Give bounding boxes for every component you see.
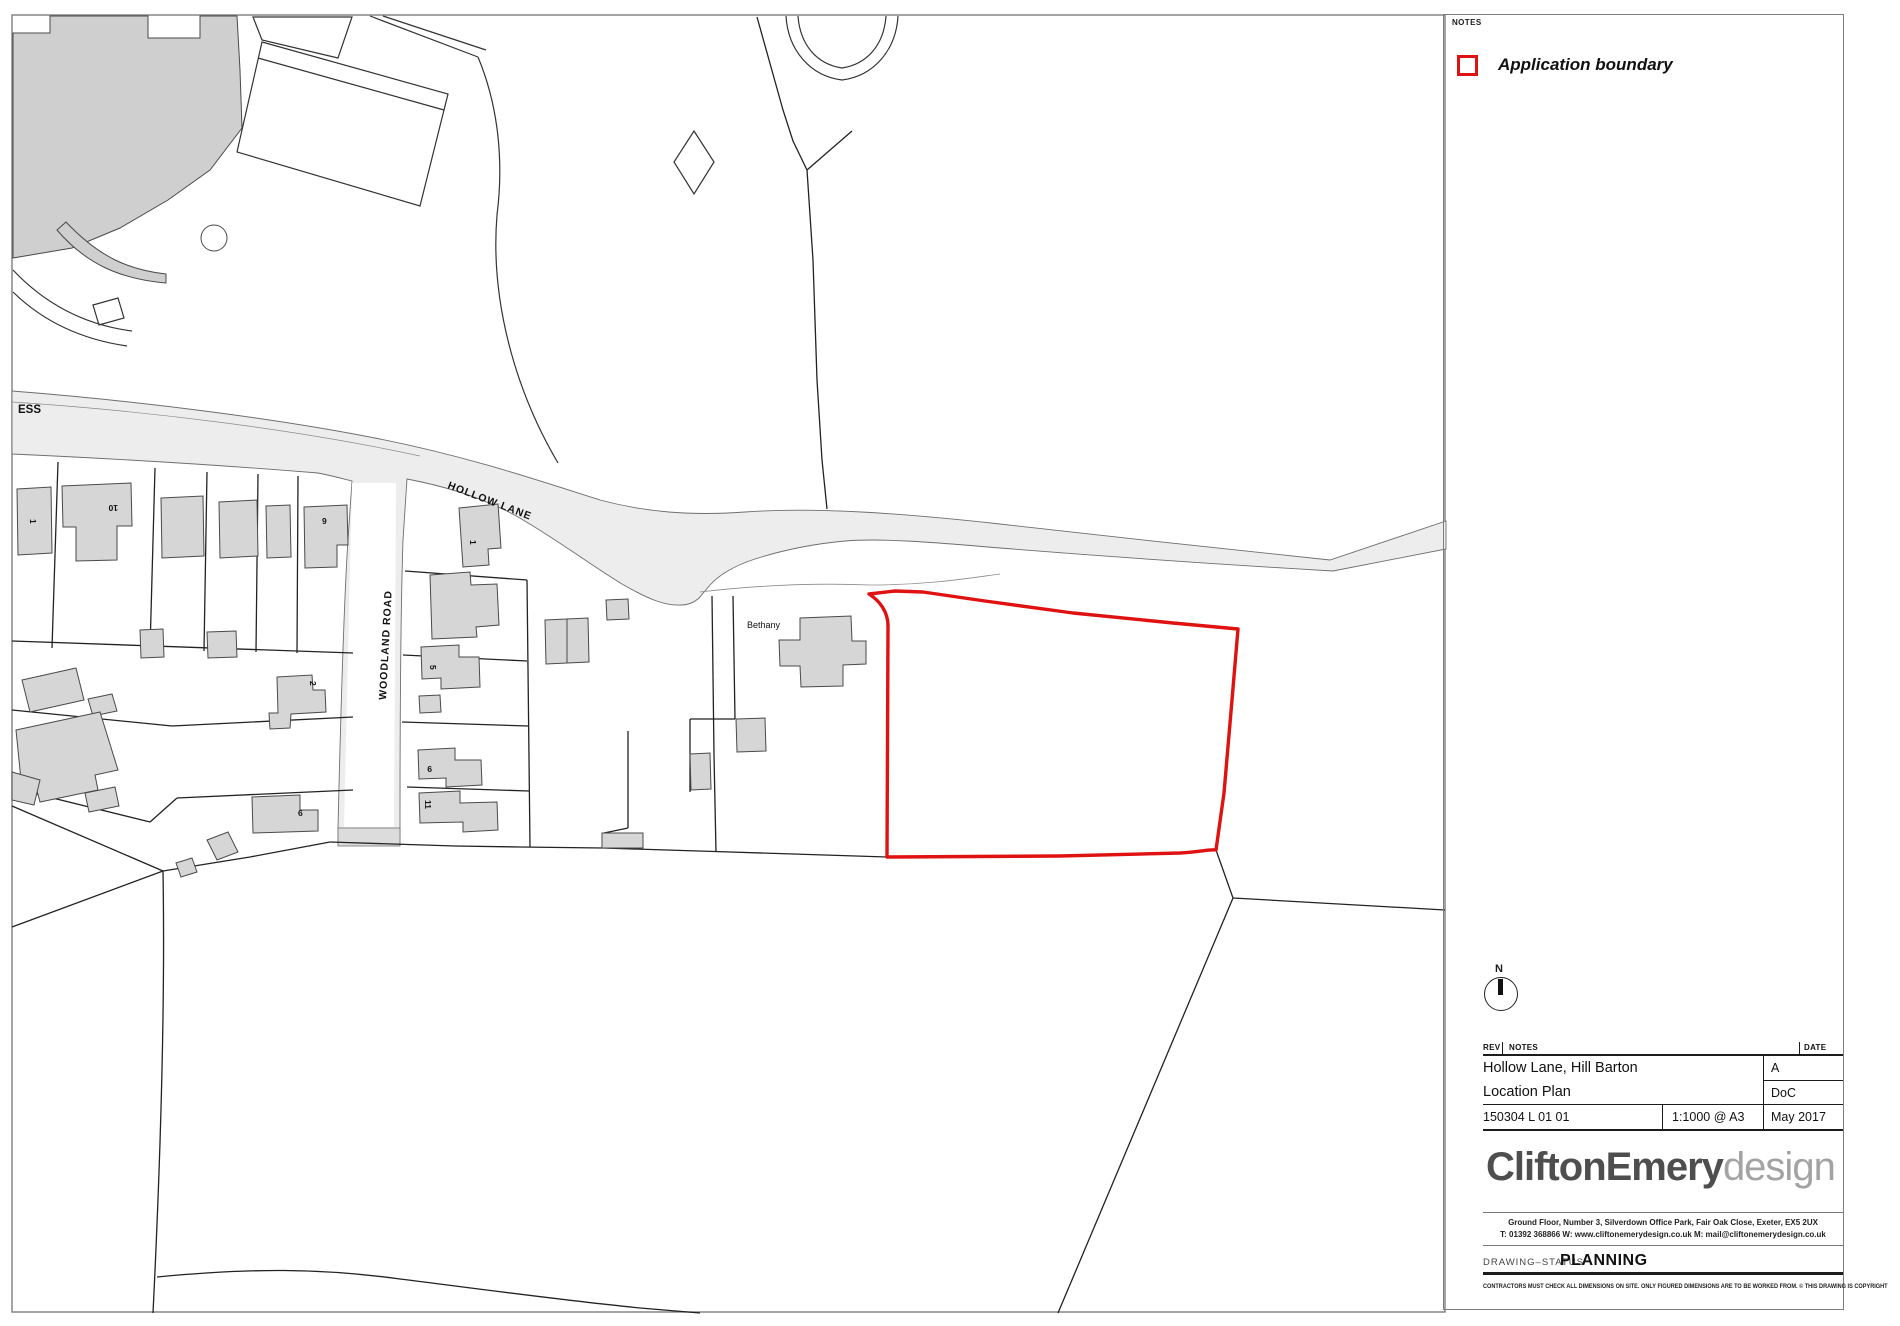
shed-east [419,695,441,713]
house-number: 10 [108,503,118,513]
house-b [219,500,258,558]
project-title: Hollow Lane, Hill Barton [1483,1060,1638,1076]
tree-circle [201,225,227,251]
notes-header: NOTES [1509,1043,1538,1052]
house-a [161,496,204,558]
house-number: 1 [28,519,38,524]
shed-boundary [602,833,643,848]
logo-primary: CliftonEmery [1486,1145,1723,1189]
scale-value: 1:1000 @ A3 [1672,1110,1744,1124]
house-number: 9 [427,764,432,774]
house-number: 6 [298,808,303,818]
north-arrow-needle [1498,979,1503,995]
drawn-by-value: DoC [1771,1086,1796,1100]
small-block [606,599,629,620]
north-label: N [1495,963,1503,975]
road-label-ess: ESS [18,404,41,416]
map-frame [12,15,1445,1312]
house-c [266,505,291,558]
house-number: 5 [428,665,438,670]
planning-drawing-sheet: ESS HOLLOW LANE WOODLAND ROAD Bethany 1 … [0,0,1900,1326]
company-address: Ground Floor, Number 3, Silverdown Offic… [1483,1218,1843,1227]
logo-secondary: design [1723,1145,1835,1189]
application-boundary-swatch [1457,55,1478,76]
date-value: May 2017 [1771,1110,1826,1124]
revision-value: A [1771,1061,1779,1075]
house-number: 1 [468,540,478,545]
date-header: DATE [1804,1043,1826,1052]
company-contact: T: 01392 368866 W: www.cliftonemerydesig… [1483,1230,1843,1239]
legend-label: Application boundary [1498,55,1673,75]
notes-panel-title: NOTES [1452,18,1482,27]
house-number: 9 [322,516,327,526]
company-logo: CliftonEmerydesign [1486,1145,1835,1190]
drawing-status-value: PLANNING [1560,1252,1648,1270]
drawing-number: 150304 L 01 01 [1483,1110,1569,1124]
rev-header: REV [1483,1043,1500,1052]
property-label-bethany: Bethany [747,620,781,630]
house-number: 2 [308,681,318,686]
house-number: 11 [423,800,433,809]
disclaimer-text: CONTRACTORS MUST CHECK ALL DIMENSIONS ON… [1483,1284,1888,1290]
drawing-title: Location Plan [1483,1084,1571,1100]
